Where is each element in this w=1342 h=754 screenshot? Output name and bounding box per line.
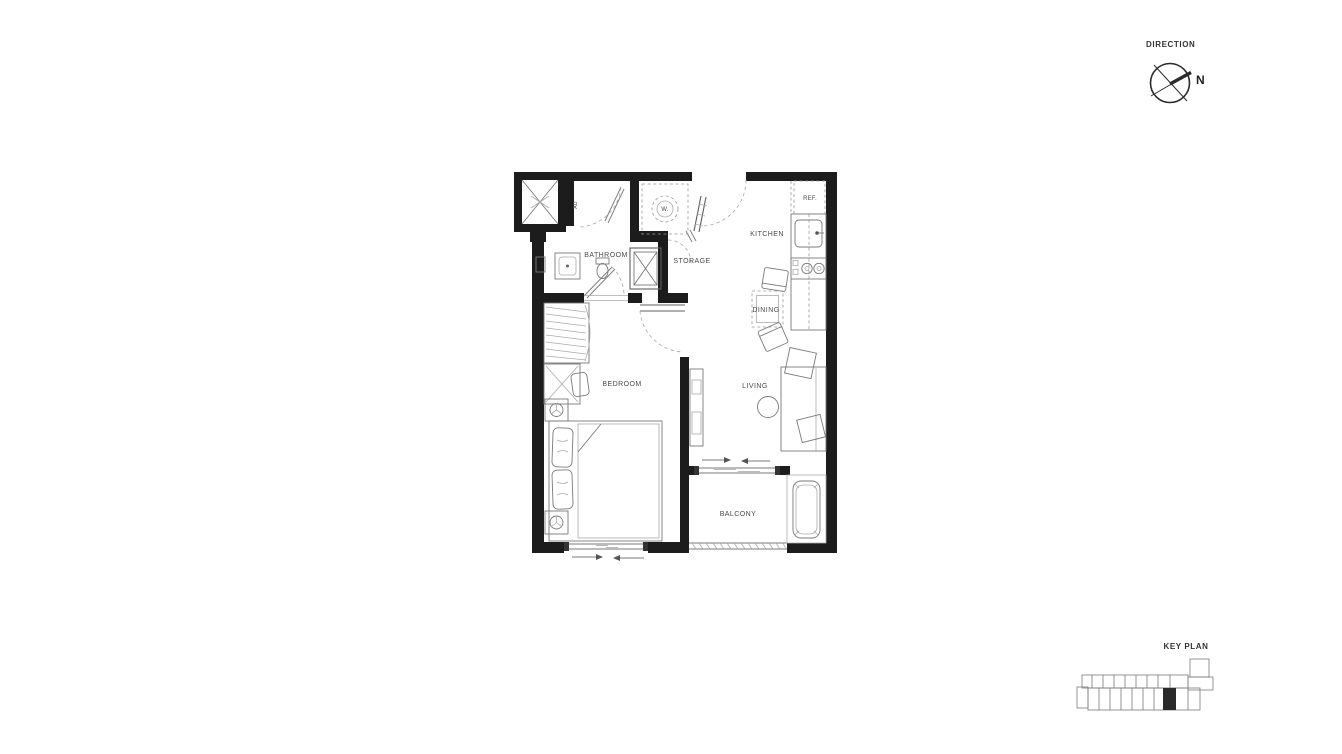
living-label: LIVING <box>742 383 768 390</box>
bedroom-sliding-window-icon <box>564 542 648 561</box>
dining-chair-icon <box>758 322 789 352</box>
balcony-label: BALCONY <box>720 511 757 518</box>
air-duct-label: AD <box>573 201 579 209</box>
bathroom-door-icon <box>584 267 628 301</box>
entrance-door-icon <box>694 180 746 232</box>
north-label: N <box>1196 73 1205 87</box>
refrigerator-label: REF. <box>803 196 817 202</box>
kitchen-label: KITCHEN <box>750 231 784 238</box>
shower-icon <box>630 248 661 289</box>
coffee-table-icon <box>758 397 779 418</box>
sofa-icon <box>781 348 826 451</box>
kitchen-counter <box>791 181 826 330</box>
balcony-sliding-door-icon <box>694 457 780 475</box>
toilet-icon <box>596 258 609 279</box>
tv-console-icon <box>690 369 703 446</box>
hall-door-icon <box>580 187 624 227</box>
nightstand-icon <box>545 399 568 421</box>
dining-chair-icon <box>762 267 789 291</box>
wardrobe-icon <box>544 303 590 363</box>
floor-plan-page: AD <box>0 0 1342 754</box>
dining-label: DINING <box>752 307 779 314</box>
key-plan-drawing <box>1077 659 1213 710</box>
kitchen-sink-icon <box>795 220 824 247</box>
desk-icon <box>544 364 590 404</box>
ac-condenser-icon <box>787 475 826 543</box>
direction-title: DIRECTION <box>1146 40 1195 49</box>
bed-icon <box>549 421 662 541</box>
washer-label: W. <box>661 207 669 213</box>
stove-icon <box>791 258 826 279</box>
compass-icon <box>1151 64 1192 103</box>
nightstand-icon <box>545 511 568 534</box>
bathroom-label: BATHROOM <box>584 252 628 259</box>
walls <box>514 172 837 553</box>
key-plan-highlighted-unit <box>1163 688 1176 710</box>
key-plan-title: KEY PLAN <box>1163 642 1208 651</box>
balcony-railing <box>689 543 787 549</box>
bedroom-label: BEDROOM <box>602 381 641 388</box>
floor-plan-drawing: AD <box>0 0 1342 754</box>
bedroom-door-icon <box>640 305 685 352</box>
storage-label: STORAGE <box>673 258 710 265</box>
